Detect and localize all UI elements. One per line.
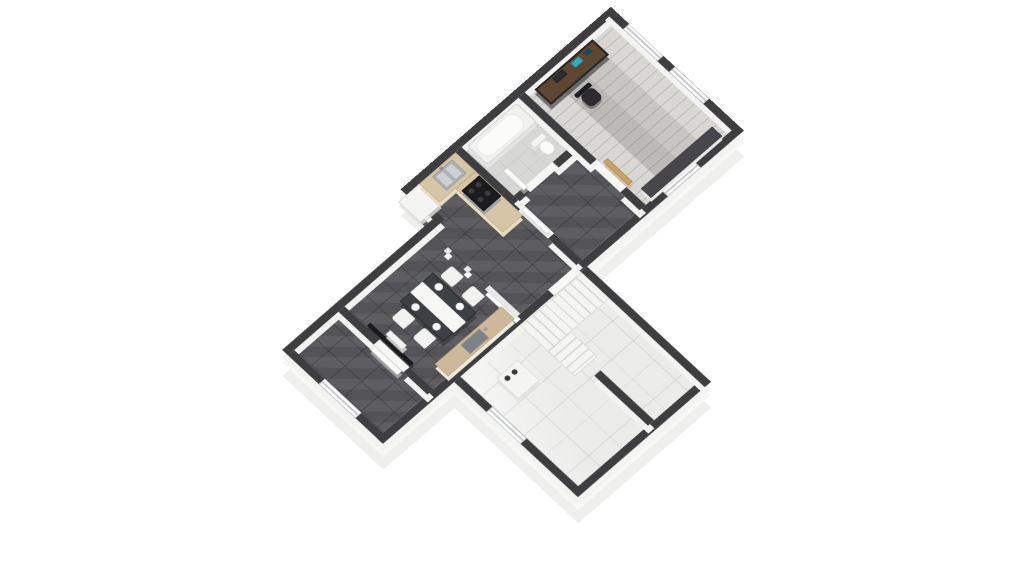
floor-plan-canvas — [0, 0, 1011, 570]
